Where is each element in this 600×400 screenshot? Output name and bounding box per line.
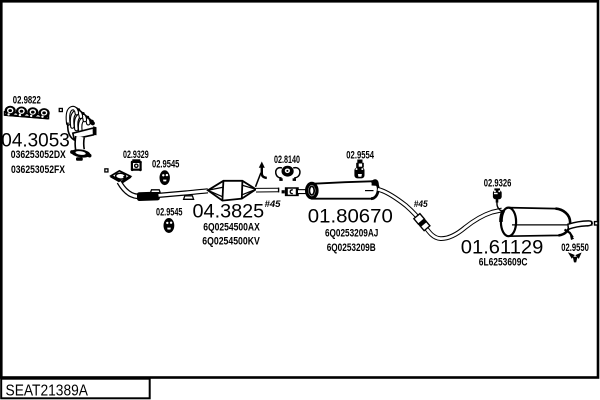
svg-text:#45: #45 [265, 199, 282, 209]
svg-text:6Q0253209B: 6Q0253209B [327, 242, 376, 254]
svg-text:01.80670: 01.80670 [308, 206, 393, 228]
svg-text:02.9326: 02.9326 [484, 178, 512, 190]
svg-text:01.61129: 01.61129 [461, 237, 544, 259]
svg-text:02.8140: 02.8140 [274, 154, 300, 166]
svg-text:04.3825: 04.3825 [193, 200, 265, 222]
svg-text:6Q0254500AX: 6Q0254500AX [203, 221, 260, 233]
svg-text:036253052FX: 036253052FX [11, 164, 65, 176]
svg-text:6L6253609C: 6L6253609C [479, 257, 528, 269]
svg-text:6Q0253209AJ: 6Q0253209AJ [325, 228, 378, 240]
svg-text:02.9545: 02.9545 [152, 158, 179, 170]
svg-text:6Q0254500KV: 6Q0254500KV [202, 236, 260, 248]
svg-text:02.9329: 02.9329 [123, 149, 149, 161]
svg-text:02.9545: 02.9545 [156, 206, 183, 218]
svg-text:#45: #45 [414, 199, 429, 209]
svg-text:SEAT21389A: SEAT21389A [6, 382, 89, 399]
svg-text:02.9550: 02.9550 [561, 242, 589, 254]
svg-text:02.9822: 02.9822 [13, 94, 41, 106]
svg-text:036253052DX: 036253052DX [11, 149, 66, 161]
